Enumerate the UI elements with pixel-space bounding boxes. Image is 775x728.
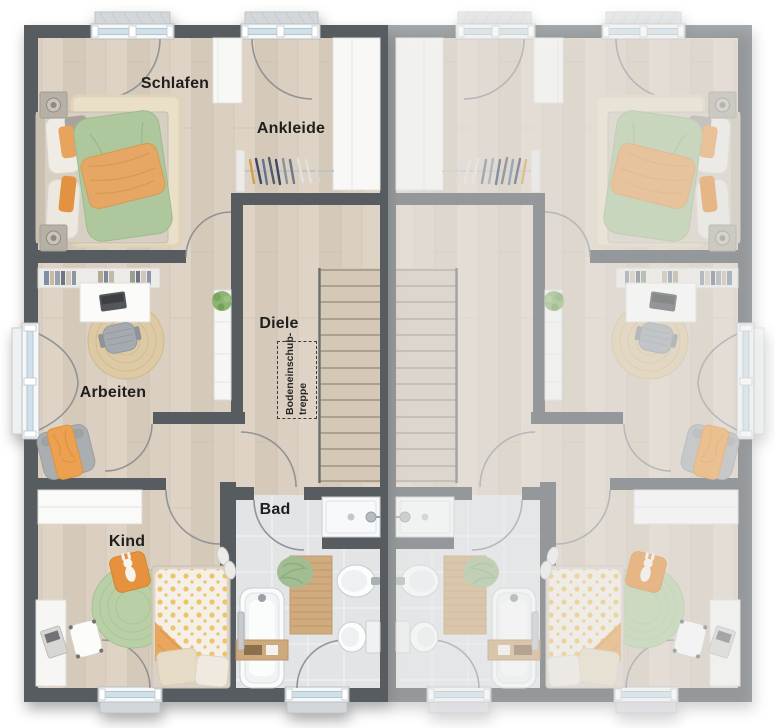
floor-plan-drawing: [0, 0, 775, 728]
kids-desk: [36, 600, 68, 686]
double-bed: [36, 109, 174, 244]
building: [12, 12, 764, 713]
plant: [212, 291, 232, 311]
schlafen-furniture: [36, 92, 180, 251]
shower: [322, 497, 380, 537]
nightstand: [40, 225, 67, 251]
nightstand: [40, 92, 67, 118]
wardrobe-divider: [213, 38, 242, 103]
towel: [277, 556, 313, 588]
right-unit-mirrored: [388, 12, 764, 713]
toilet: [338, 621, 380, 653]
laptop: [99, 291, 127, 311]
attic-hatch-label-line2: treppe: [297, 345, 310, 415]
attic-hatch-label-line1: Bodeneinschub-: [284, 345, 297, 415]
attic-hatch-label-box: Bodeneinschub- treppe: [277, 341, 317, 419]
wardrobe-right: [333, 38, 380, 190]
staircase: [318, 268, 380, 483]
window-schlafen: [91, 12, 174, 39]
left-unit: [12, 12, 388, 713]
window-bad: [285, 687, 349, 713]
child-bed: [152, 566, 230, 688]
wardrobe: [38, 490, 142, 524]
radiator: [238, 612, 244, 650]
window-left-wall: [12, 323, 39, 439]
floor-plan-stage: Schlafen Ankleide Diele Arbeiten Kind Ba…: [0, 0, 775, 728]
window-kind: [98, 687, 162, 713]
window-ankleide: [241, 12, 320, 39]
desk: [80, 283, 150, 322]
